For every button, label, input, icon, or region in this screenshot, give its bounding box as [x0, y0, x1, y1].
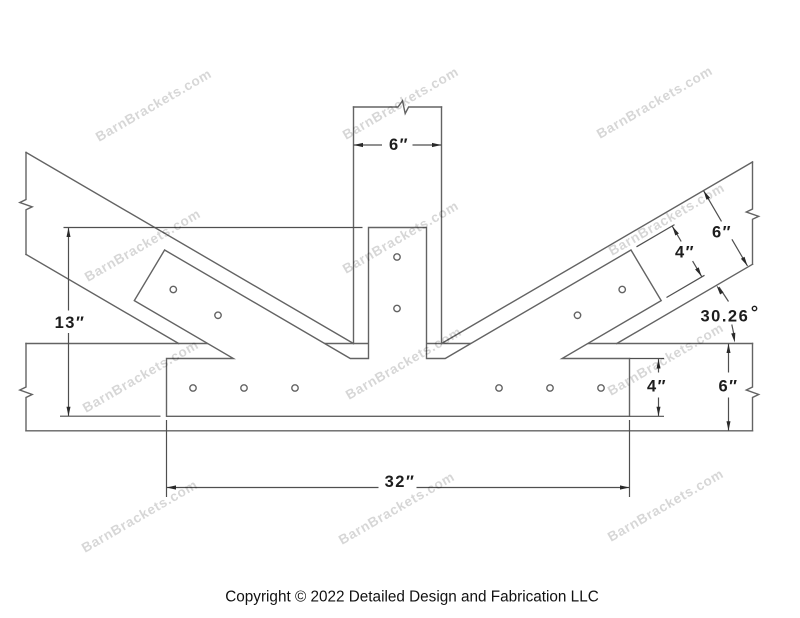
- svg-text:6″: 6″: [389, 136, 409, 154]
- svg-text:4″: 4″: [647, 378, 667, 396]
- svg-text:Copyright © 2022 Detailed Desi: Copyright © 2022 Detailed Design and Fab…: [225, 589, 599, 606]
- svg-text:30.26: 30.26: [701, 308, 750, 326]
- svg-text:32″: 32″: [385, 473, 416, 491]
- svg-text:13″: 13″: [55, 314, 86, 332]
- svg-text:6″: 6″: [712, 224, 732, 242]
- svg-text:6″: 6″: [718, 378, 738, 396]
- svg-text:4″: 4″: [675, 244, 695, 262]
